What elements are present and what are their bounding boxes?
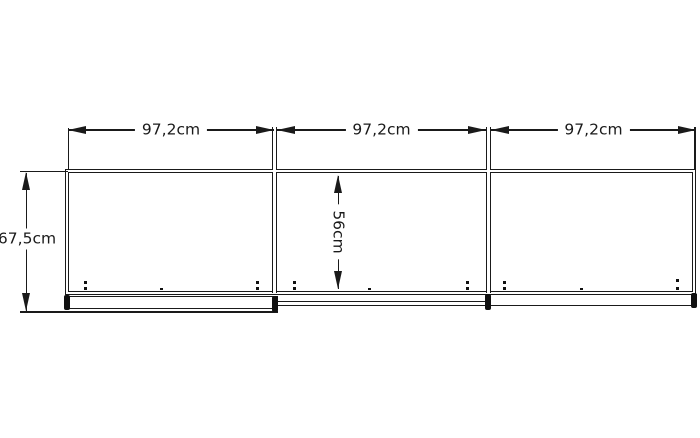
drill-hole-dot xyxy=(293,287,296,290)
drill-hole-dot xyxy=(676,287,679,290)
arrowhead-down-icon xyxy=(334,271,342,289)
drill-hole-dot xyxy=(368,288,371,291)
arrowhead-right-icon xyxy=(256,126,274,134)
width-dimension-section-2: 97,2cm xyxy=(277,120,486,140)
arrowhead-down-icon xyxy=(22,293,30,311)
arrowhead-left-icon xyxy=(491,126,509,134)
cabinet-outline-inner-line xyxy=(68,172,693,292)
drill-hole-dot xyxy=(466,281,469,284)
wardrobe-dimension-diagram: 97,2cm 97,2cm 97,2cm 67,5cm 56cm xyxy=(0,0,700,438)
arrowhead-left-icon xyxy=(277,126,295,134)
rail-end-cap xyxy=(272,296,278,312)
rail-end-cap xyxy=(485,294,491,310)
width-dimension-section-1: 97,2cm xyxy=(68,120,274,140)
drill-hole-dot xyxy=(84,281,87,284)
arrowhead-up-icon xyxy=(22,172,30,190)
drill-hole-dot xyxy=(466,287,469,290)
drill-hole-dot xyxy=(293,281,296,284)
drill-hole-dot xyxy=(256,287,259,290)
width-dimension-label-2: 97,2cm xyxy=(345,121,417,140)
width-dimension-label-3: 97,2cm xyxy=(557,121,629,140)
drill-hole-dot xyxy=(676,279,679,282)
arrowhead-right-icon xyxy=(678,126,696,134)
arrowhead-up-icon xyxy=(334,175,342,193)
drill-hole-dot xyxy=(256,281,259,284)
drill-hole-dot xyxy=(84,287,87,290)
overall-height-label: 67,5cm xyxy=(0,229,58,250)
width-dimension-label-1: 97,2cm xyxy=(135,121,207,140)
inner-height-label: 56cm xyxy=(329,204,348,259)
drill-hole-dot xyxy=(503,281,506,284)
cabinet-outline xyxy=(65,169,696,295)
height-extension-line-bottom xyxy=(20,311,278,313)
cabinet-divider-right xyxy=(486,172,491,293)
drill-hole-dot xyxy=(160,288,163,291)
arrowhead-right-icon xyxy=(468,126,486,134)
arrowhead-left-icon xyxy=(68,126,86,134)
sliding-door-rail-right xyxy=(486,294,697,306)
cabinet-divider-left xyxy=(272,172,277,293)
rail-end-cap xyxy=(64,295,70,310)
drill-hole-dot xyxy=(580,288,583,291)
sliding-door-rail-middle xyxy=(278,301,486,306)
width-dimension-section-3: 97,2cm xyxy=(491,120,696,140)
sliding-door-rail-left xyxy=(65,296,278,309)
drill-hole-dot xyxy=(503,287,506,290)
rail-end-cap xyxy=(691,293,698,308)
